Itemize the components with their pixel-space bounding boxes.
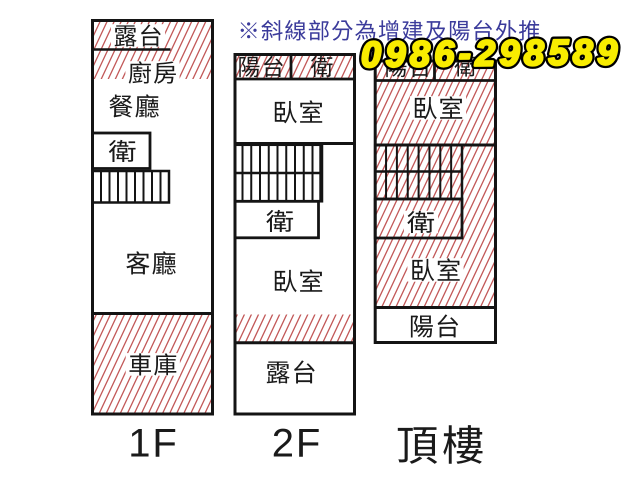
svg-text:2F: 2F xyxy=(272,422,323,466)
svg-text:0986-298589: 0986-298589 xyxy=(361,31,622,75)
svg-text:1F: 1F xyxy=(128,422,179,466)
